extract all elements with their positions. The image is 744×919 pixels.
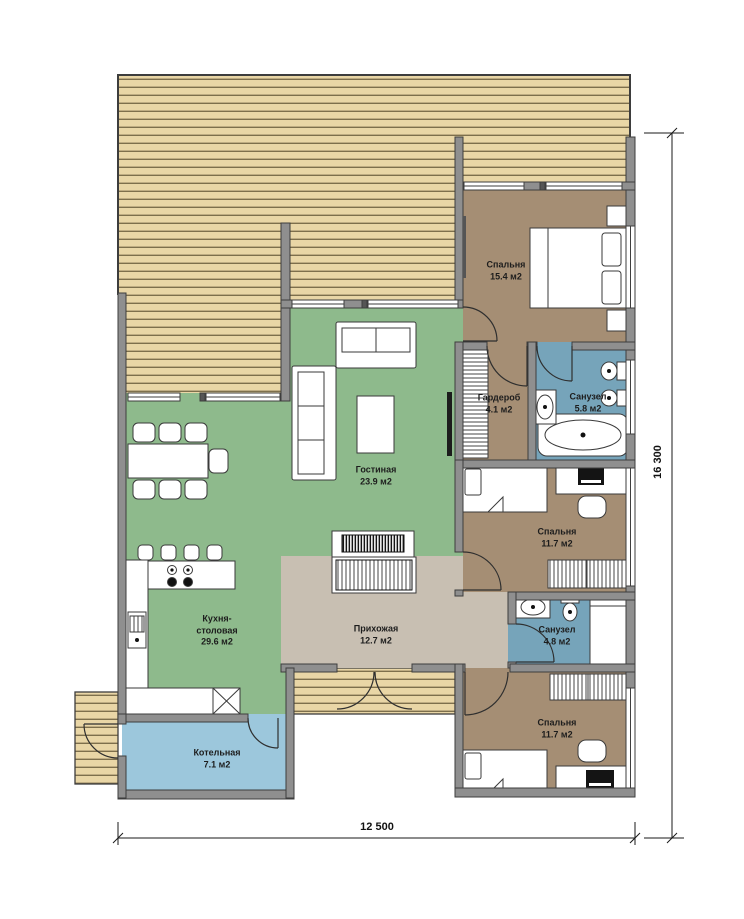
side-steps (75, 692, 118, 784)
dining-table (128, 444, 208, 478)
room-label-hallway: Прихожая 12.7 м2 (354, 623, 398, 646)
window-kitchen-north (128, 393, 280, 401)
room-label-living: Гостиная 23.9 м2 (356, 464, 397, 487)
window-bedroom-south-east (626, 688, 635, 788)
hallway-closet (332, 557, 416, 593)
media-console (332, 531, 414, 557)
room-label-wardrobe: Гардероб 4.1 м2 (478, 392, 521, 415)
tv-panel (447, 392, 452, 456)
dimension-width-label: 12 500 (360, 821, 394, 833)
bedroom-south-west-wall (455, 664, 463, 794)
boiler-east-wall (286, 668, 294, 798)
room-label-boiler: Котельная 7.1 м2 (193, 747, 240, 770)
floor-plan: Спальня 15.4 м2 Гардероб 4.1 м2 Санузел … (0, 0, 744, 919)
room-label-bathroom-main: Санузел 5.8 м2 (569, 391, 606, 414)
nightstand (607, 206, 626, 226)
wardrobe-south-bedroom (550, 674, 626, 700)
wardrobe-bathroom-divider (528, 342, 536, 464)
boiler-north-wall (122, 714, 248, 722)
bed-middle (462, 466, 547, 512)
pillow (465, 753, 481, 779)
window-living-north (292, 300, 458, 308)
wardrobe-west-wall (455, 342, 463, 460)
room-label-bathroom-small: Санузел 4.8 м2 (538, 624, 575, 647)
bedroom-master-west-wall (455, 137, 463, 308)
floor-plan-drawing (0, 0, 744, 919)
pillow (602, 271, 621, 304)
entrance-porch (288, 668, 455, 714)
wardrobe-middle-bedroom (548, 560, 626, 588)
office-chair (578, 496, 606, 518)
living-west-fin-wall (281, 223, 290, 401)
bed-south (462, 750, 547, 794)
kitchen-passage-floor (240, 672, 288, 716)
room-label-bedroom-master: Спальня 15.4 м2 (487, 259, 526, 282)
pillow (602, 233, 621, 266)
dimension-height (644, 128, 684, 843)
dimension-height-label: 16 300 (652, 445, 664, 479)
nightstand (607, 310, 626, 331)
office-chair (578, 740, 606, 762)
toilet (601, 362, 626, 380)
shower (590, 594, 630, 666)
room-label-bedroom-middle: Спальня 11.7 м2 (538, 526, 577, 549)
bed-master (530, 228, 627, 308)
room-label-bedroom-south: Спальня 11.7 м2 (538, 717, 577, 740)
window-bedroom-middle-east (626, 468, 635, 586)
window-master-east (626, 226, 635, 308)
window-bathroom-main-east (626, 360, 635, 434)
sofa-left (292, 366, 336, 480)
pillow (465, 469, 481, 495)
sofa-top (336, 322, 416, 368)
bathroom-main-sink (534, 390, 556, 424)
sliding-door-master (463, 216, 466, 278)
room-label-kitchen: Кухня-столовая 29.6 м2 (185, 613, 249, 648)
window-master-north (464, 182, 622, 190)
kitchen-sink (130, 616, 144, 632)
kitchen-counter-bottom (126, 688, 240, 714)
boiler-south-wall (118, 790, 294, 799)
kitchen-counter-left (126, 560, 148, 690)
hallway-pocket-floor (455, 592, 508, 668)
west-wall (118, 293, 126, 714)
south-wall-east-block (455, 788, 635, 797)
coffee-table (357, 396, 394, 453)
